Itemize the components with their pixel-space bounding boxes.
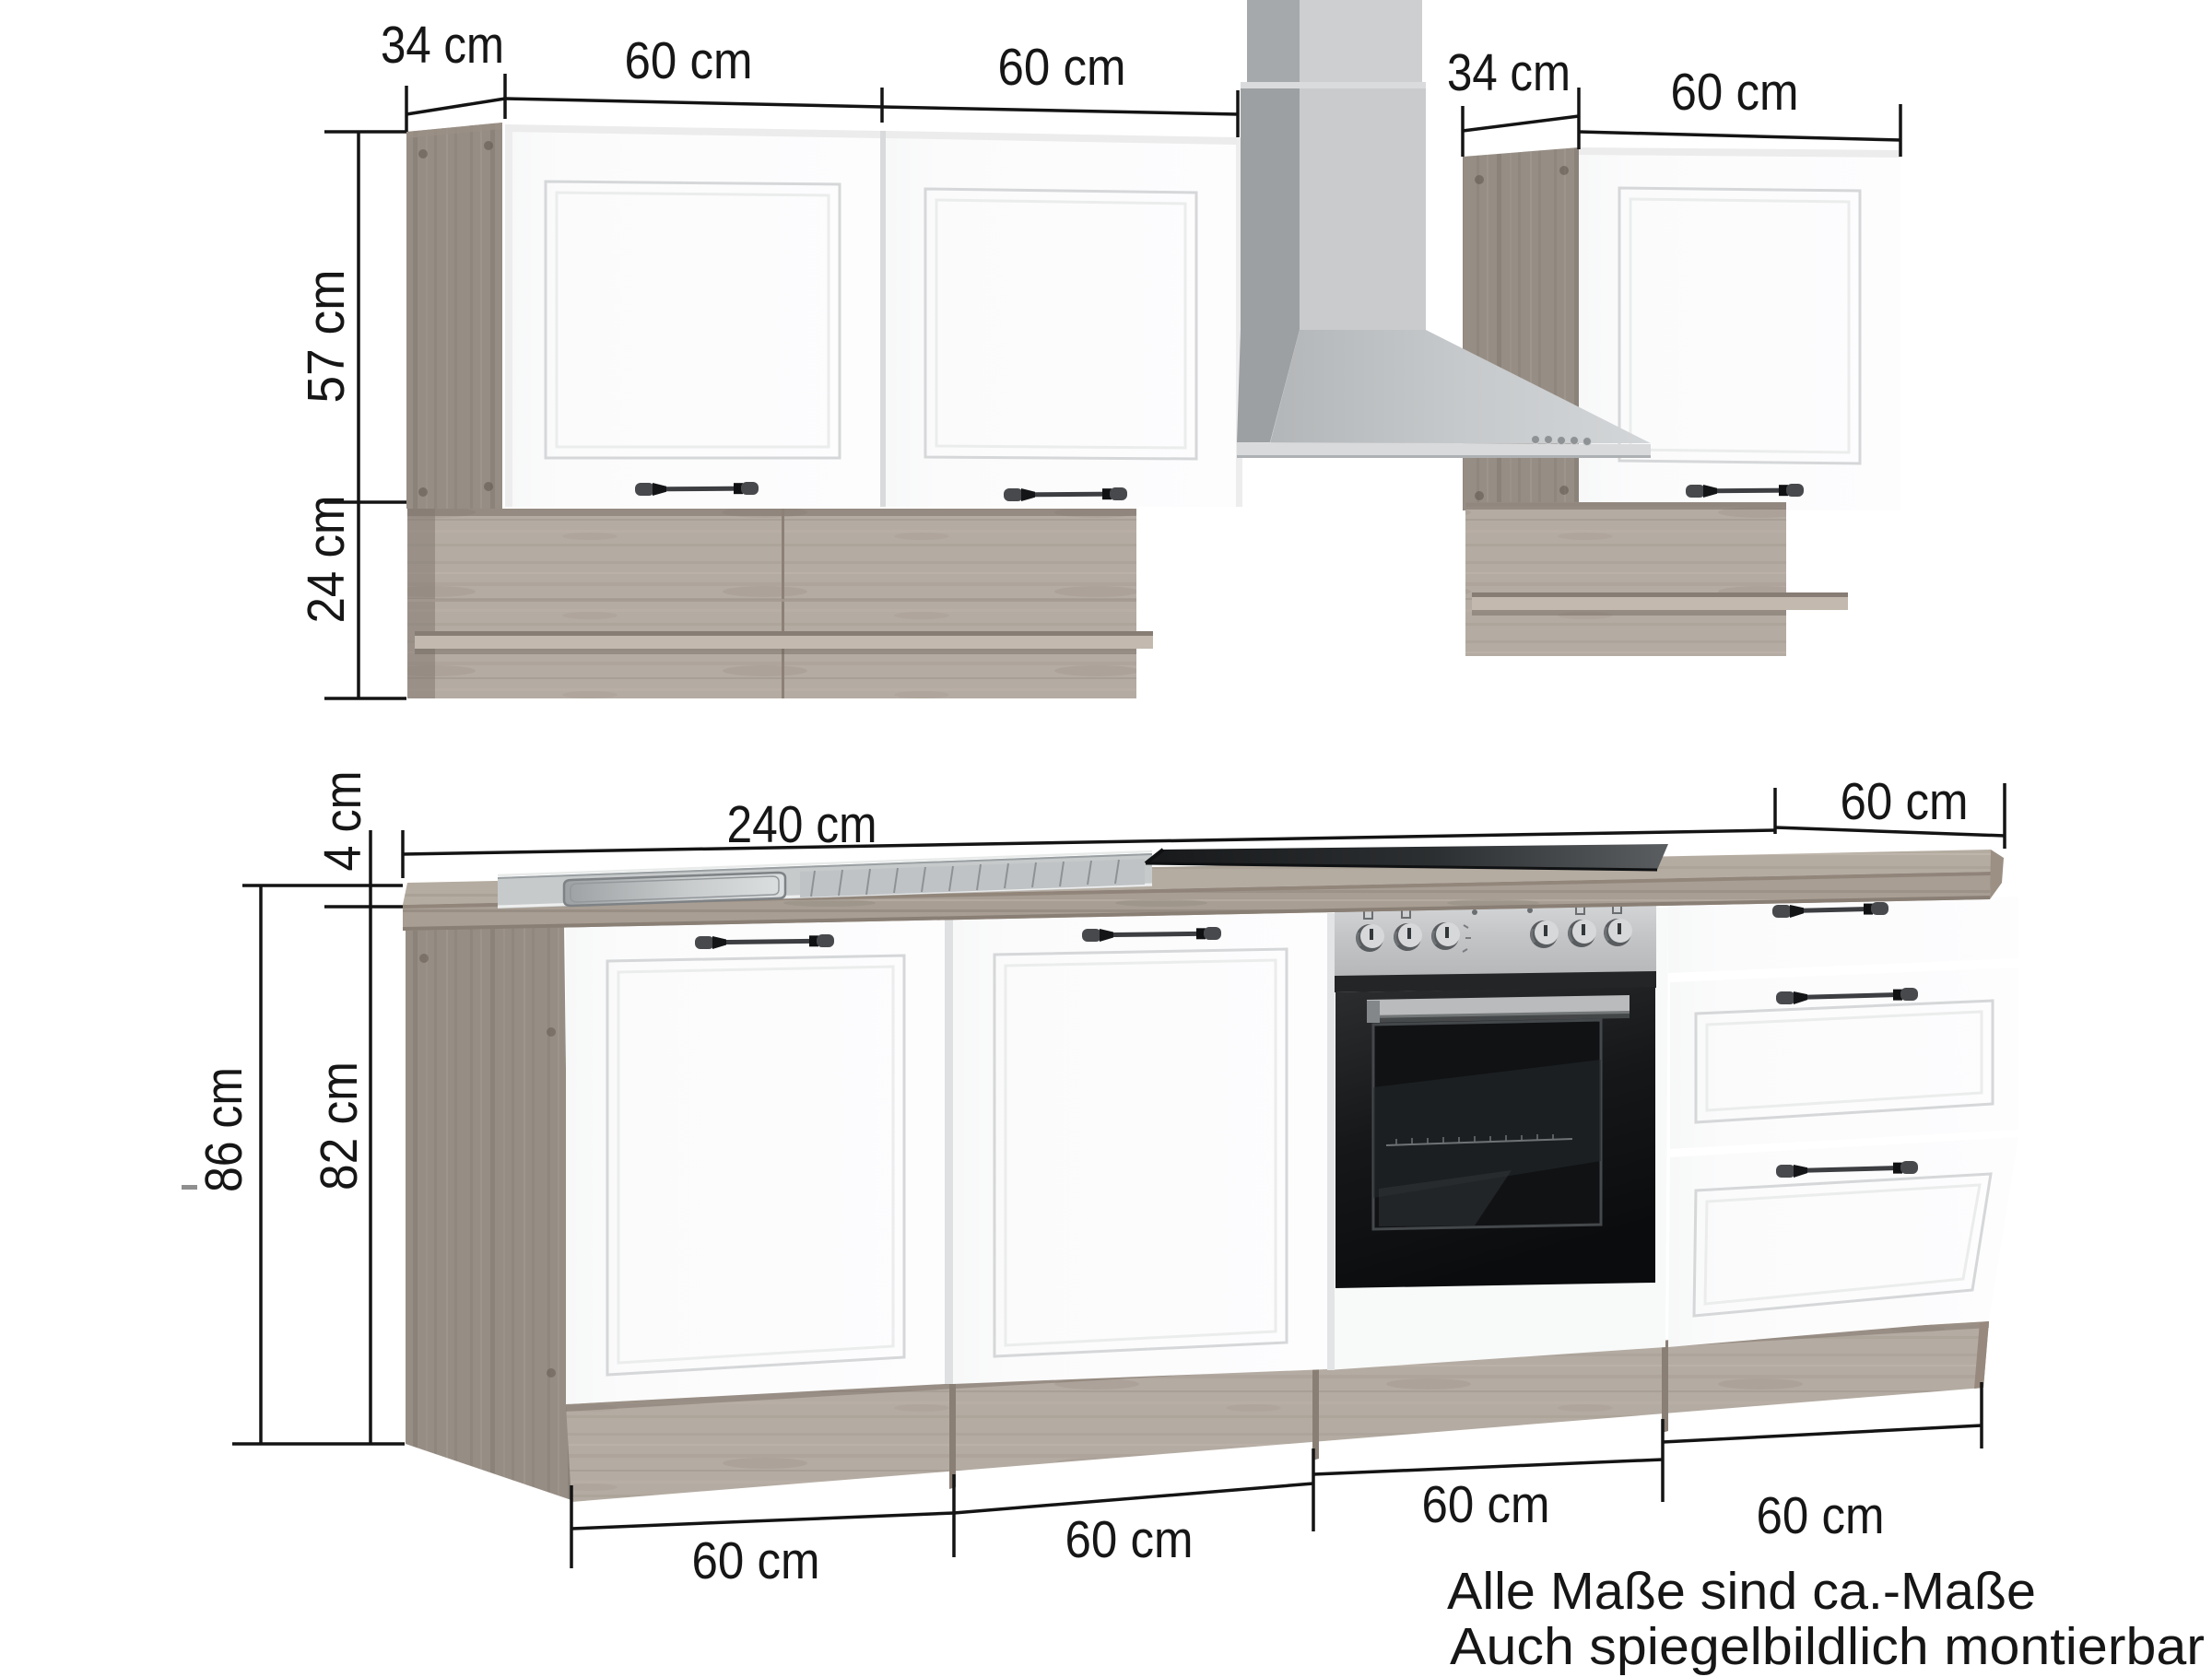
svg-text:60 cm: 60 cm — [625, 31, 753, 90]
svg-text:60 cm: 60 cm — [1841, 772, 1969, 831]
svg-text:57 cm: 57 cm — [297, 270, 356, 404]
svg-text:34 cm: 34 cm — [381, 16, 504, 75]
svg-text:Alle Maße sind ca.-Maße: Alle Maße sind ca.-Maße — [1447, 1562, 2036, 1621]
svg-text:Auch spiegelbildlich montierba: Auch spiegelbildlich montierbar — [1450, 1617, 2205, 1676]
svg-text:60 cm: 60 cm — [1757, 1486, 1885, 1545]
svg-text:240 cm: 240 cm — [727, 795, 877, 854]
svg-text:60 cm: 60 cm — [1422, 1475, 1550, 1534]
svg-text:86 cm: 86 cm — [194, 1067, 253, 1192]
svg-text:60 cm: 60 cm — [692, 1531, 820, 1590]
svg-text:34 cm: 34 cm — [1447, 43, 1571, 102]
svg-text:82 cm: 82 cm — [310, 1061, 369, 1190]
svg-text:4 cm: 4 cm — [313, 771, 372, 872]
svg-text:60 cm: 60 cm — [998, 38, 1126, 97]
svg-text:60 cm: 60 cm — [1065, 1510, 1194, 1569]
svg-text:60 cm: 60 cm — [1671, 63, 1799, 122]
svg-text:24 cm: 24 cm — [297, 496, 356, 624]
